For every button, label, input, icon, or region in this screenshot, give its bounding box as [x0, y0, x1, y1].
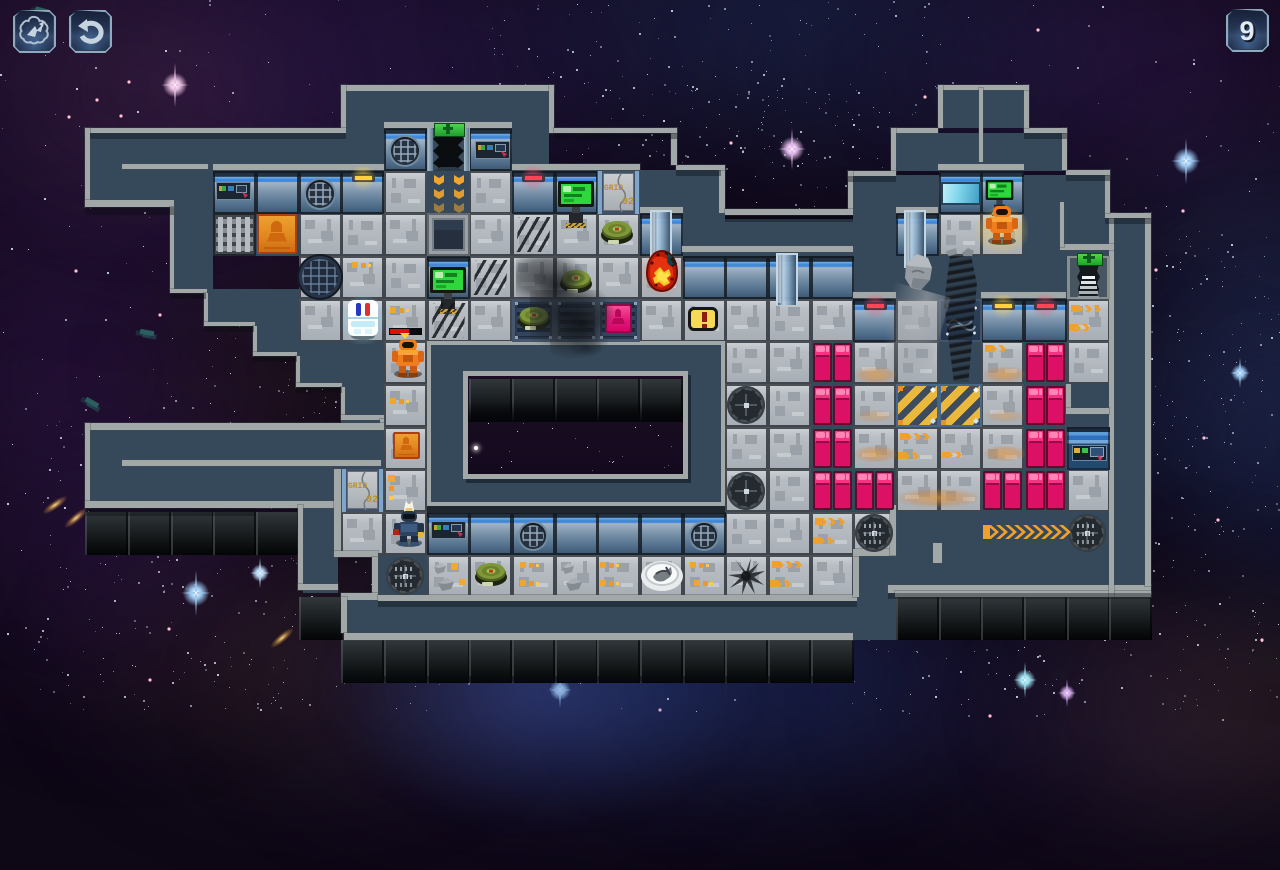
svg-text:02: 02	[622, 197, 634, 208]
svg-text:GRID: GRID	[348, 482, 367, 491]
svg-text:GRID: GRID	[604, 184, 623, 193]
svg-text:02: 02	[366, 495, 378, 506]
svg-text:9: 9	[1239, 16, 1254, 46]
